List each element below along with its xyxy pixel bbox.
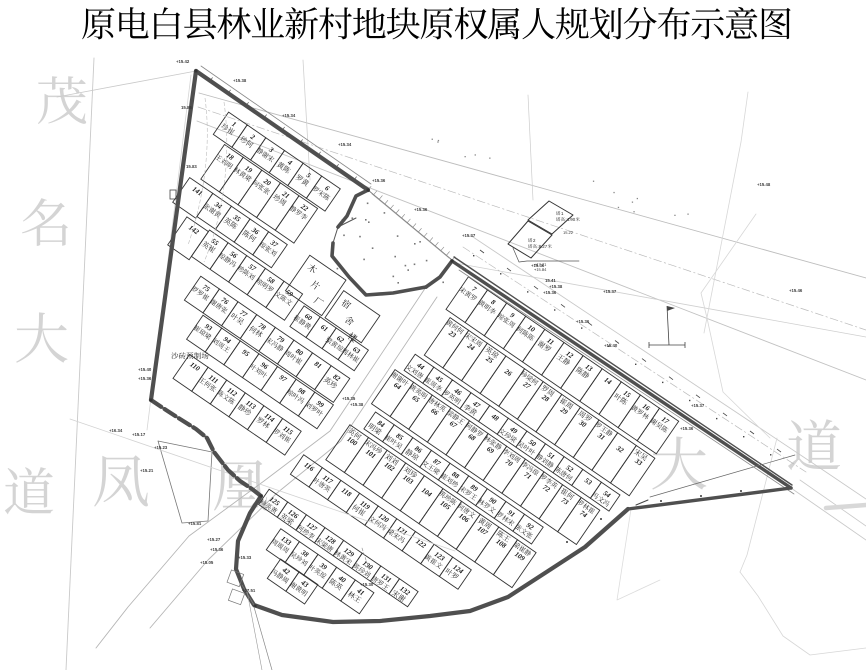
svg-text:+15.38: +15.38 [350,402,364,407]
svg-text:15.85: 15.85 [181,105,192,110]
svg-text:+16.34: +16.34 [109,428,123,433]
svg-text:+15.35: +15.35 [342,396,356,401]
svg-text:+15.36: +15.36 [543,290,557,295]
svg-text:+15.34: +15.34 [338,142,352,147]
svg-text:+15.36: +15.36 [576,319,590,324]
svg-text:+15.36: +15.36 [414,207,428,212]
svg-text:+15.34: +15.34 [282,113,296,118]
svg-text:+15.36: +15.36 [680,426,694,431]
svg-text:+17.51: +17.51 [242,588,256,593]
svg-text:+15.37: +15.37 [603,289,617,294]
svg-text:+15.27: +15.27 [207,537,221,542]
svg-text:+15.33: +15.33 [238,555,252,560]
svg-text:+15.38: +15.38 [233,78,247,83]
svg-text:+15.05: +15.05 [200,560,214,565]
svg-text:15.22: 15.22 [563,230,574,235]
svg-text:15.41: 15.41 [545,278,556,283]
svg-text:+15.40: +15.40 [604,343,618,348]
svg-text:+15.36: +15.36 [372,178,386,183]
svg-text::8.27: :8.27 [537,244,547,249]
svg-text:+15.17: +15.17 [132,432,146,437]
svg-text::4.90: :4.90 [565,217,575,222]
svg-text:+15.30: +15.30 [360,582,374,587]
svg-text:+15.37: +15.37 [691,403,705,408]
svg-text:+15.40: +15.40 [138,367,152,372]
svg-text:+15.36: +15.36 [531,263,545,268]
svg-text:+15.37: +15.37 [462,233,476,238]
svg-text:+15.38: +15.38 [549,284,563,289]
svg-text:+15.36: +15.36 [210,547,224,552]
svg-text:+15.81: +15.81 [188,521,202,526]
svg-text:+15.48: +15.48 [757,182,771,187]
svg-text:+15.46: +15.46 [789,288,803,293]
svg-text:+15.36: +15.36 [138,376,152,381]
svg-text:15.83: 15.83 [186,164,197,169]
svg-text:+15.21: +15.21 [140,468,154,473]
svg-text:+15.23: +15.23 [154,445,168,450]
svg-text:+15.42: +15.42 [176,59,190,64]
